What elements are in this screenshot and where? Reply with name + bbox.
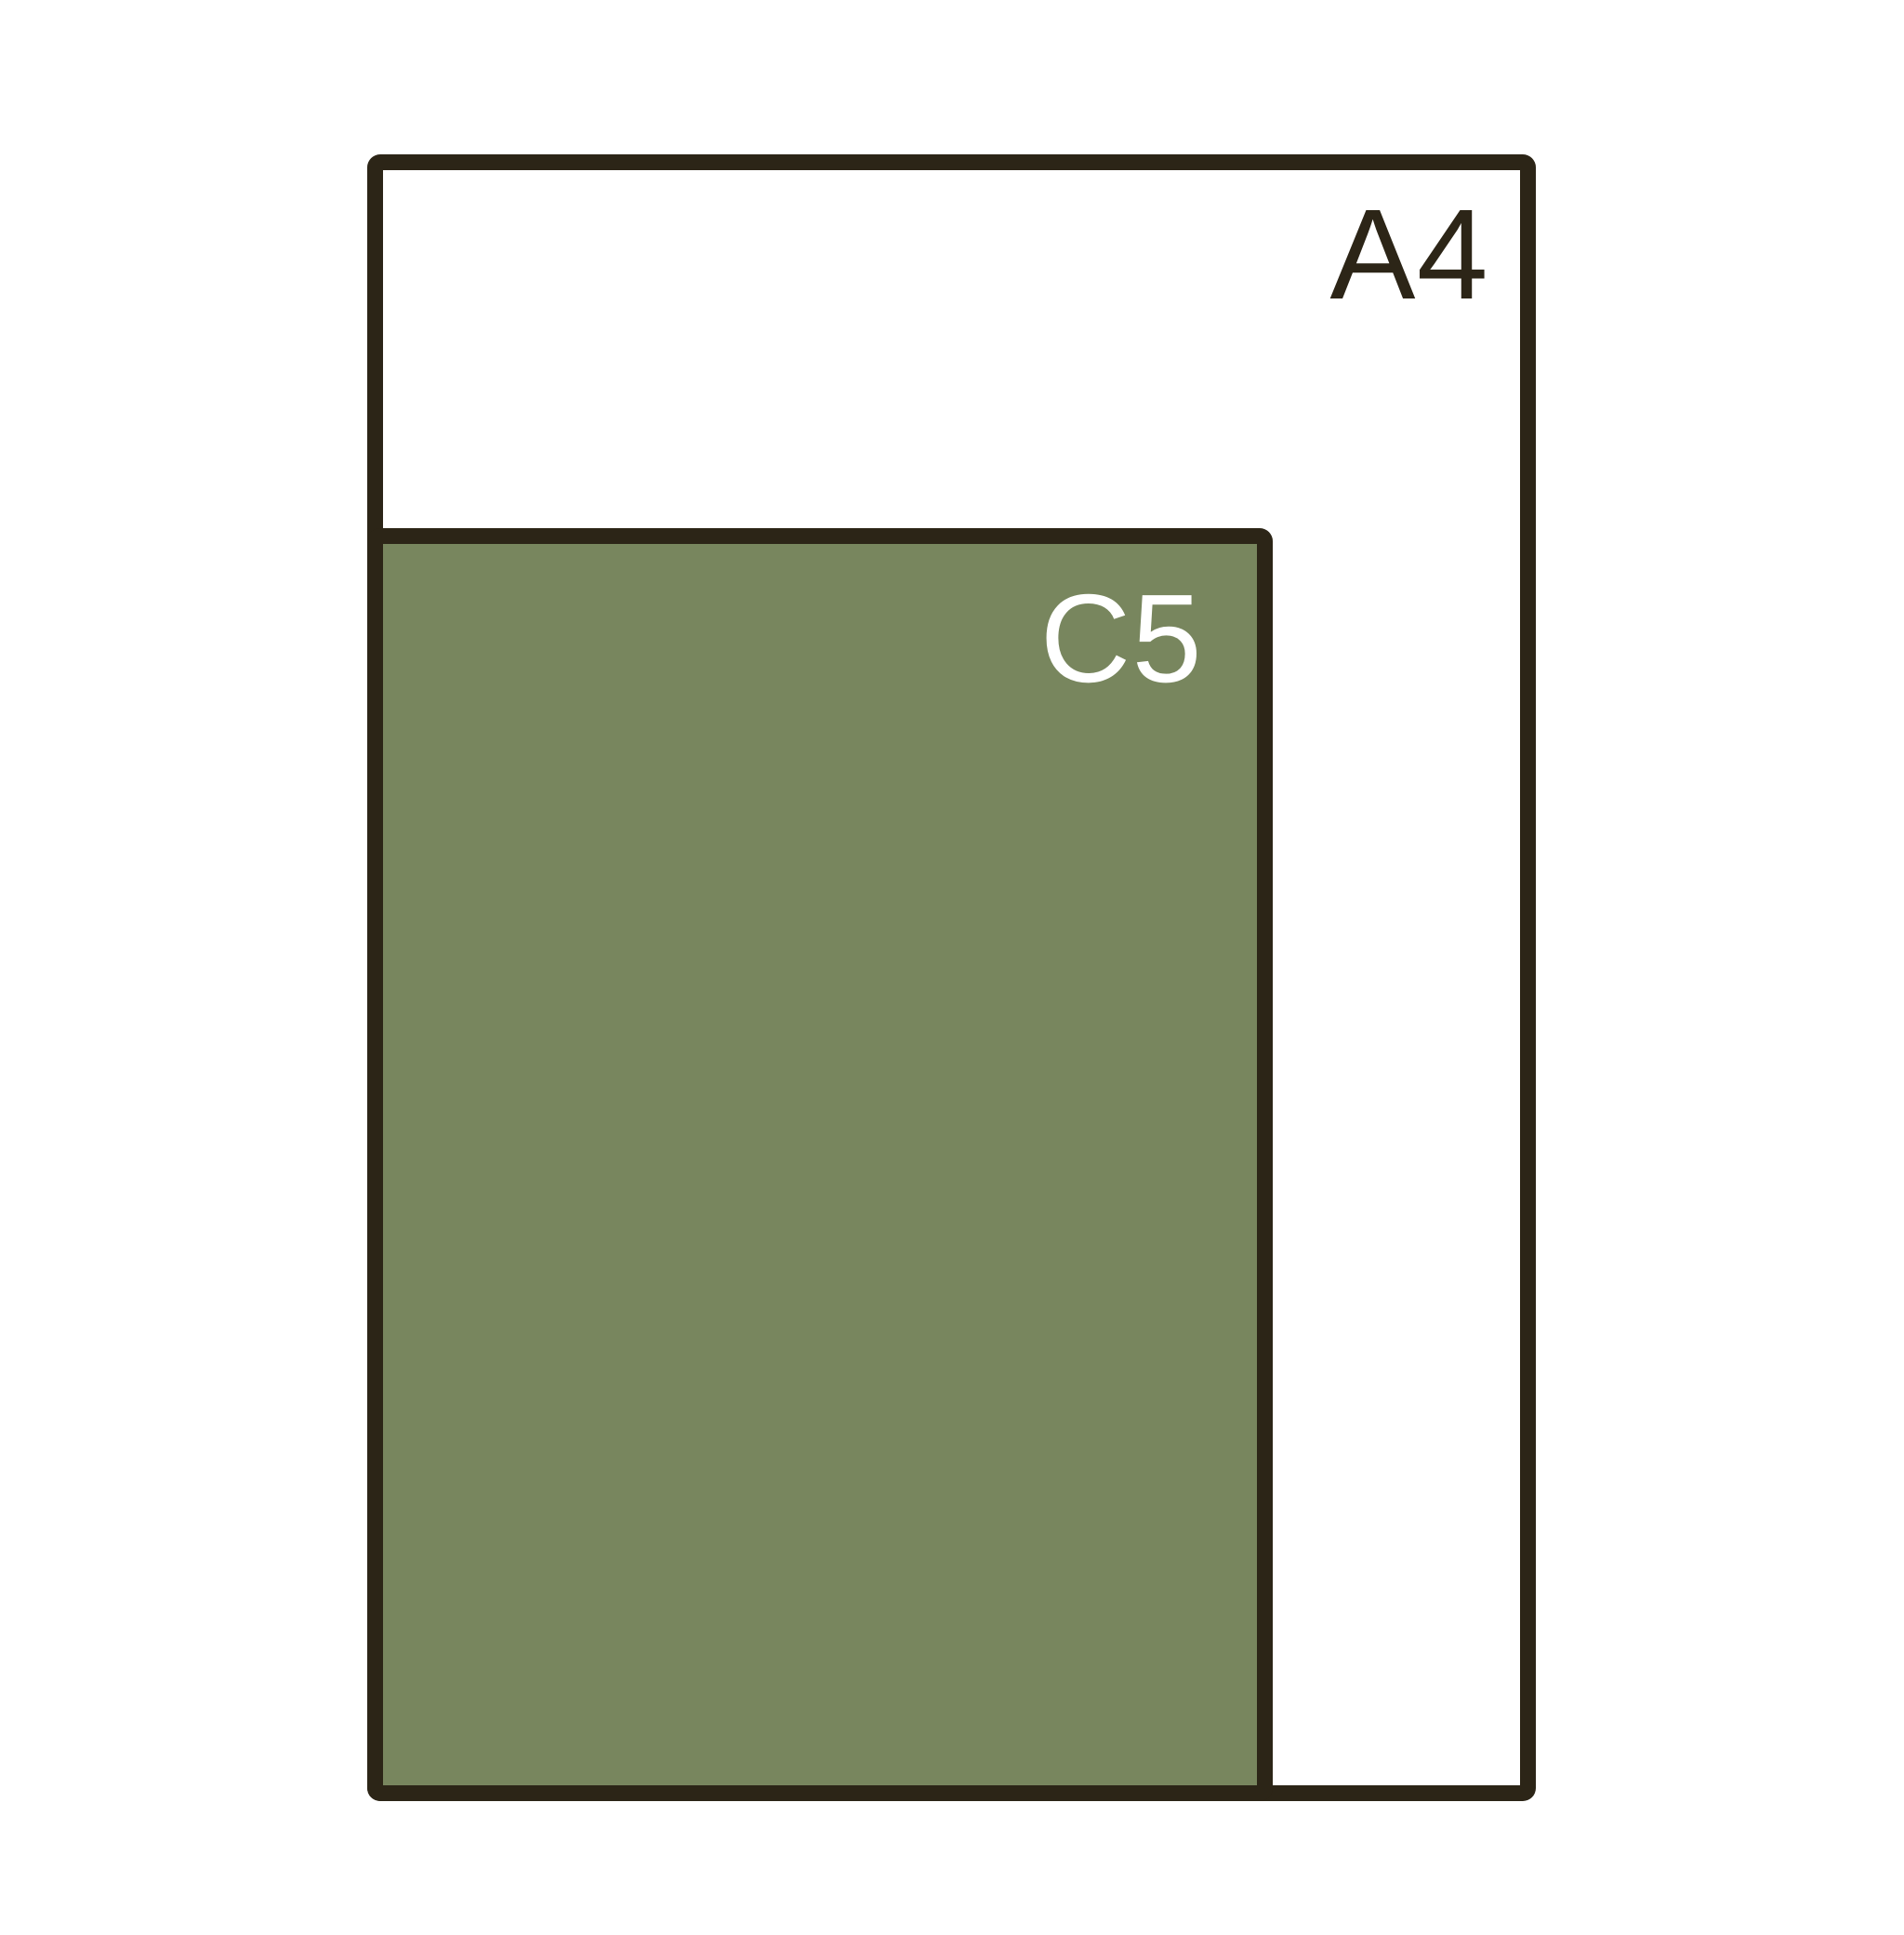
c5-rectangle: C5 — [367, 528, 1273, 1801]
paper-size-diagram: A4 C5 — [0, 0, 1904, 1935]
a4-label: A4 — [1329, 191, 1489, 319]
c5-label: C5 — [1040, 576, 1203, 701]
